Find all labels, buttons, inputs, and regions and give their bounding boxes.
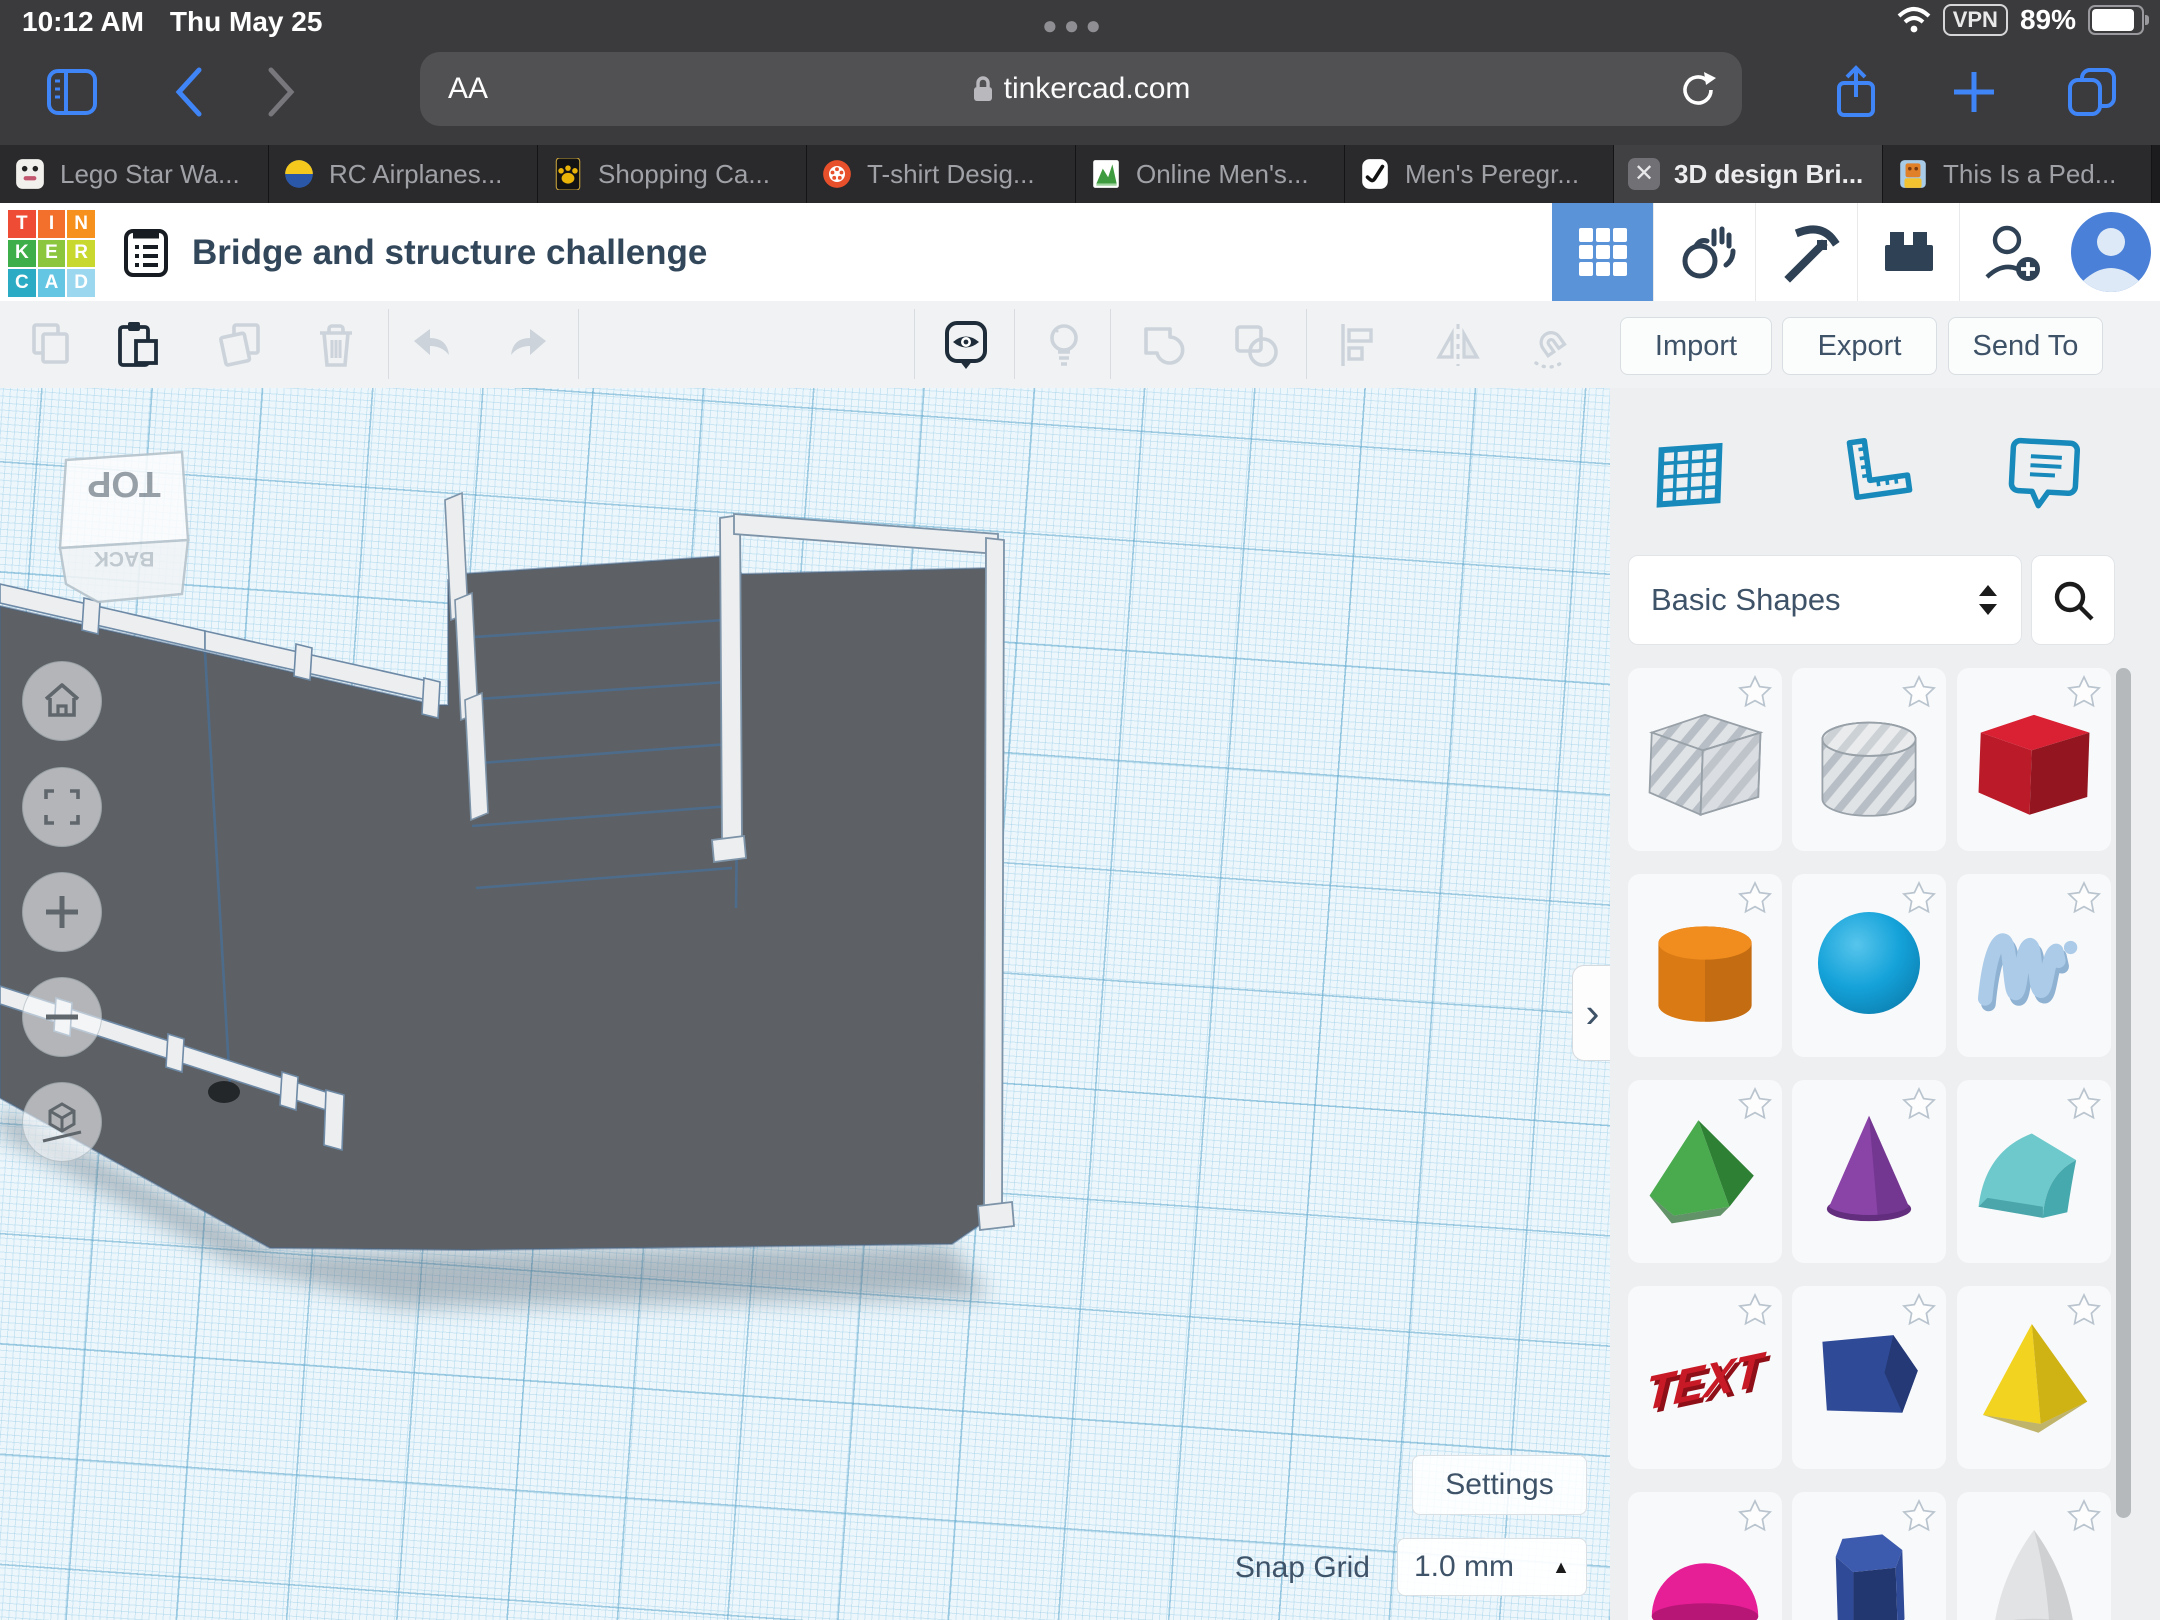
battery-icon <box>2088 5 2144 35</box>
shape-box-hole[interactable] <box>1628 668 1782 851</box>
dropdown-arrows-icon <box>1977 583 1999 617</box>
design-title[interactable]: Bridge and structure challenge <box>192 233 707 273</box>
copy-icon[interactable] <box>26 319 78 371</box>
app-header: TINKERCAD Bridge and structure challenge <box>0 203 2160 301</box>
shape-cylinder[interactable] <box>1628 874 1782 1057</box>
panel-scrollbar[interactable] <box>2116 668 2131 1518</box>
dropdown-arrow-icon: ▲ <box>1552 1557 1570 1578</box>
paw-favicon <box>552 158 584 190</box>
tab-title: T-shirt Desig... <box>867 159 1035 190</box>
reload-button[interactable] <box>1678 68 1718 117</box>
ungroup-icon[interactable] <box>1230 319 1282 371</box>
ruler-tool-icon[interactable] <box>1830 432 1914 516</box>
light-icon[interactable] <box>1038 319 1090 371</box>
share-button[interactable] <box>1826 56 1886 128</box>
flower-favicon <box>821 158 853 190</box>
browser-toolbar: AA tinkercad.com <box>0 42 2160 145</box>
logo-tile-I: I <box>38 210 66 238</box>
design-canvas[interactable]: TOP BACK Settings Snap Grid <box>0 388 1610 1620</box>
browser-tab-6[interactable]: Men's Peregr... <box>1345 145 1614 203</box>
logo-tile-K: K <box>8 240 36 268</box>
shape-roof[interactable] <box>1628 1080 1782 1263</box>
shape-cylinder-hole[interactable] <box>1792 668 1946 851</box>
logo-tile-E: E <box>38 240 66 268</box>
browser-tab-8[interactable]: This Is a Ped... <box>1883 145 2152 203</box>
bridge-scene: TOP BACK <box>0 388 1610 1620</box>
tab-title: Men's Peregr... <box>1405 159 1579 190</box>
logo-tile-R: R <box>67 240 95 268</box>
paste-icon[interactable] <box>112 319 164 371</box>
favorite-star-icon[interactable] <box>1736 1292 1774 1330</box>
snap-grid-label: Snap Grid <box>1130 1551 1370 1585</box>
date: Thu May 25 <box>170 6 322 38</box>
settings-button[interactable]: Settings <box>1412 1455 1587 1515</box>
logo-tile-C: C <box>8 269 36 297</box>
structure-detail <box>208 1081 240 1103</box>
view-cube[interactable]: TOP BACK <box>60 452 188 602</box>
shape-box[interactable] <box>1957 668 2111 851</box>
logo-tile-T: T <box>8 210 36 238</box>
tab-title: RC Airplanes... <box>329 159 502 190</box>
inspect-icon[interactable] <box>940 319 992 371</box>
account-avatar[interactable] <box>2061 203 2160 301</box>
shape-polygon[interactable] <box>1792 1492 1946 1620</box>
forward-button[interactable] <box>252 56 312 128</box>
rc-airplane-favicon <box>283 158 315 190</box>
shape-search-button[interactable] <box>2031 555 2115 645</box>
tabs-overview-button[interactable] <box>2062 56 2122 128</box>
clock: 10:12 AM <box>22 6 144 38</box>
favorite-star-icon[interactable] <box>2065 880 2103 918</box>
favorite-star-icon[interactable] <box>1736 880 1774 918</box>
ipad-screen: 10:12 AM Thu May 25 ●●● VPN 89% AA <box>0 0 2160 1620</box>
tab-title: Online Men's... <box>1136 159 1309 190</box>
shape-text[interactable]: TEXTTEXT <box>1628 1286 1782 1469</box>
logo-tile-A: A <box>38 269 66 297</box>
favorite-star-icon[interactable] <box>2065 1498 2103 1536</box>
view-cube-top-label: TOP <box>87 464 160 505</box>
favorite-star-icon[interactable] <box>2065 674 2103 712</box>
import-button[interactable]: Import <box>1620 317 1772 375</box>
browser-tab-7[interactable]: ✕3D design Bri... <box>1614 145 1883 203</box>
robot-favicon <box>1897 158 1929 190</box>
favorite-star-icon[interactable] <box>1736 674 1774 712</box>
blocks-view-button[interactable] <box>1552 203 1653 301</box>
design-list-icon[interactable] <box>122 229 170 282</box>
zoom-out-button[interactable] <box>22 977 102 1057</box>
undo-icon[interactable] <box>408 319 460 371</box>
redo-icon[interactable] <box>500 319 552 371</box>
mirror-icon[interactable] <box>1432 319 1484 371</box>
wifi-icon <box>1897 6 1931 34</box>
group-icon[interactable] <box>1138 319 1190 371</box>
chart-favicon <box>1090 158 1122 190</box>
notes-tool-icon[interactable] <box>2003 432 2087 516</box>
favorite-star-icon[interactable] <box>1900 674 1938 712</box>
snap-magnet-icon[interactable] <box>1524 319 1576 371</box>
send-to-button[interactable]: Send To <box>1948 317 2103 375</box>
workplane-tool-icon[interactable] <box>1651 432 1735 516</box>
browser-tab-5[interactable]: Online Men's... <box>1076 145 1345 203</box>
snap-grid-dropdown[interactable]: 1.0 mm ▲ <box>1397 1538 1587 1596</box>
perspective-toggle-button[interactable] <box>22 1082 102 1162</box>
browser-tab-4[interactable]: T-shirt Desig... <box>807 145 1076 203</box>
browser-tab-2[interactable]: RC Airplanes... <box>269 145 538 203</box>
shape-paraboloid[interactable] <box>1957 1492 2111 1620</box>
lock-icon <box>972 75 994 103</box>
check-favicon <box>1359 158 1391 190</box>
tab-title: This Is a Ped... <box>1943 159 2116 190</box>
favorite-star-icon[interactable] <box>1900 1292 1938 1330</box>
view-cube-back-label: BACK <box>94 547 155 570</box>
browser-tab-1[interactable]: Lego Star Wa... <box>0 145 269 203</box>
logo-tile-N: N <box>67 210 95 238</box>
favorite-star-icon[interactable] <box>1900 1498 1938 1536</box>
new-tab-button[interactable] <box>1944 56 2004 128</box>
shape-round-roof[interactable] <box>1957 1080 2111 1263</box>
lego-brick-button[interactable] <box>1857 203 1959 301</box>
panel-collapse-handle[interactable]: › <box>1572 965 1612 1061</box>
align-icon[interactable] <box>1332 319 1384 371</box>
vpn-badge: VPN <box>1943 4 2008 36</box>
edit-toolbar: Import Export Send To <box>0 301 2160 389</box>
add-person-button[interactable] <box>1959 203 2061 301</box>
delete-icon[interactable] <box>310 319 362 371</box>
shape-pyramid[interactable] <box>1957 1286 2111 1469</box>
favorite-star-icon[interactable] <box>2065 1292 2103 1330</box>
tinker-hand-button[interactable] <box>1653 203 1755 301</box>
multitasking-dots-icon[interactable]: ●●● <box>1042 10 1107 41</box>
duplicate-icon[interactable] <box>214 319 266 371</box>
fit-view-button[interactable] <box>22 767 102 847</box>
shape-wedge[interactable] <box>1792 1286 1946 1469</box>
favorite-star-icon[interactable] <box>2065 1086 2103 1124</box>
reader-button[interactable]: AA <box>448 72 488 106</box>
shape-cone[interactable] <box>1792 1080 1946 1263</box>
favorite-star-icon[interactable] <box>1736 1498 1774 1536</box>
browser-tab-3[interactable]: Shopping Ca... <box>538 145 807 203</box>
shape-category-value: Basic Shapes <box>1651 582 1841 618</box>
url-text: tinkercad.com <box>1004 72 1191 106</box>
tab-title: Shopping Ca... <box>598 159 770 190</box>
shape-category-dropdown[interactable]: Basic Shapes <box>1628 555 2022 645</box>
logo-tile-D: D <box>67 269 95 297</box>
back-button[interactable] <box>158 56 218 128</box>
shapes-panel: Basic Shapes TEXTTEXT <box>1610 388 2160 1620</box>
shape-sphere[interactable] <box>1792 874 1946 1057</box>
minecraft-pickaxe-button[interactable] <box>1755 203 1857 301</box>
bridge-structure[interactable] <box>0 556 990 1250</box>
battery-percent: 89% <box>2020 4 2076 36</box>
home-view-button[interactable] <box>22 661 102 741</box>
shape-half-sphere[interactable] <box>1628 1492 1782 1620</box>
sidebar-toggle-button[interactable] <box>42 56 102 128</box>
favorite-star-icon[interactable] <box>1736 1086 1774 1124</box>
tab-title: Lego Star Wa... <box>60 159 240 190</box>
close-icon[interactable]: ✕ <box>1628 158 1660 190</box>
tab-title: 3D design Bri... <box>1674 159 1863 190</box>
favorite-star-icon[interactable] <box>1900 880 1938 918</box>
lego-favicon <box>14 158 46 190</box>
tab-strip: Lego Star Wa...RC Airplanes...Shopping C… <box>0 145 2160 203</box>
snap-grid-value: 1.0 mm <box>1414 1550 1514 1584</box>
zoom-in-button[interactable] <box>22 872 102 952</box>
search-icon <box>2050 577 2096 623</box>
status-bar: 10:12 AM Thu May 25 ●●● VPN 89% <box>0 0 2160 42</box>
shape-scribble[interactable] <box>1957 874 2111 1057</box>
favorite-star-icon[interactable] <box>1900 1086 1938 1124</box>
export-button[interactable]: Export <box>1782 317 1937 375</box>
tinkercad-logo[interactable]: TINKERCAD <box>8 210 95 297</box>
address-bar[interactable]: AA tinkercad.com <box>420 52 1742 126</box>
